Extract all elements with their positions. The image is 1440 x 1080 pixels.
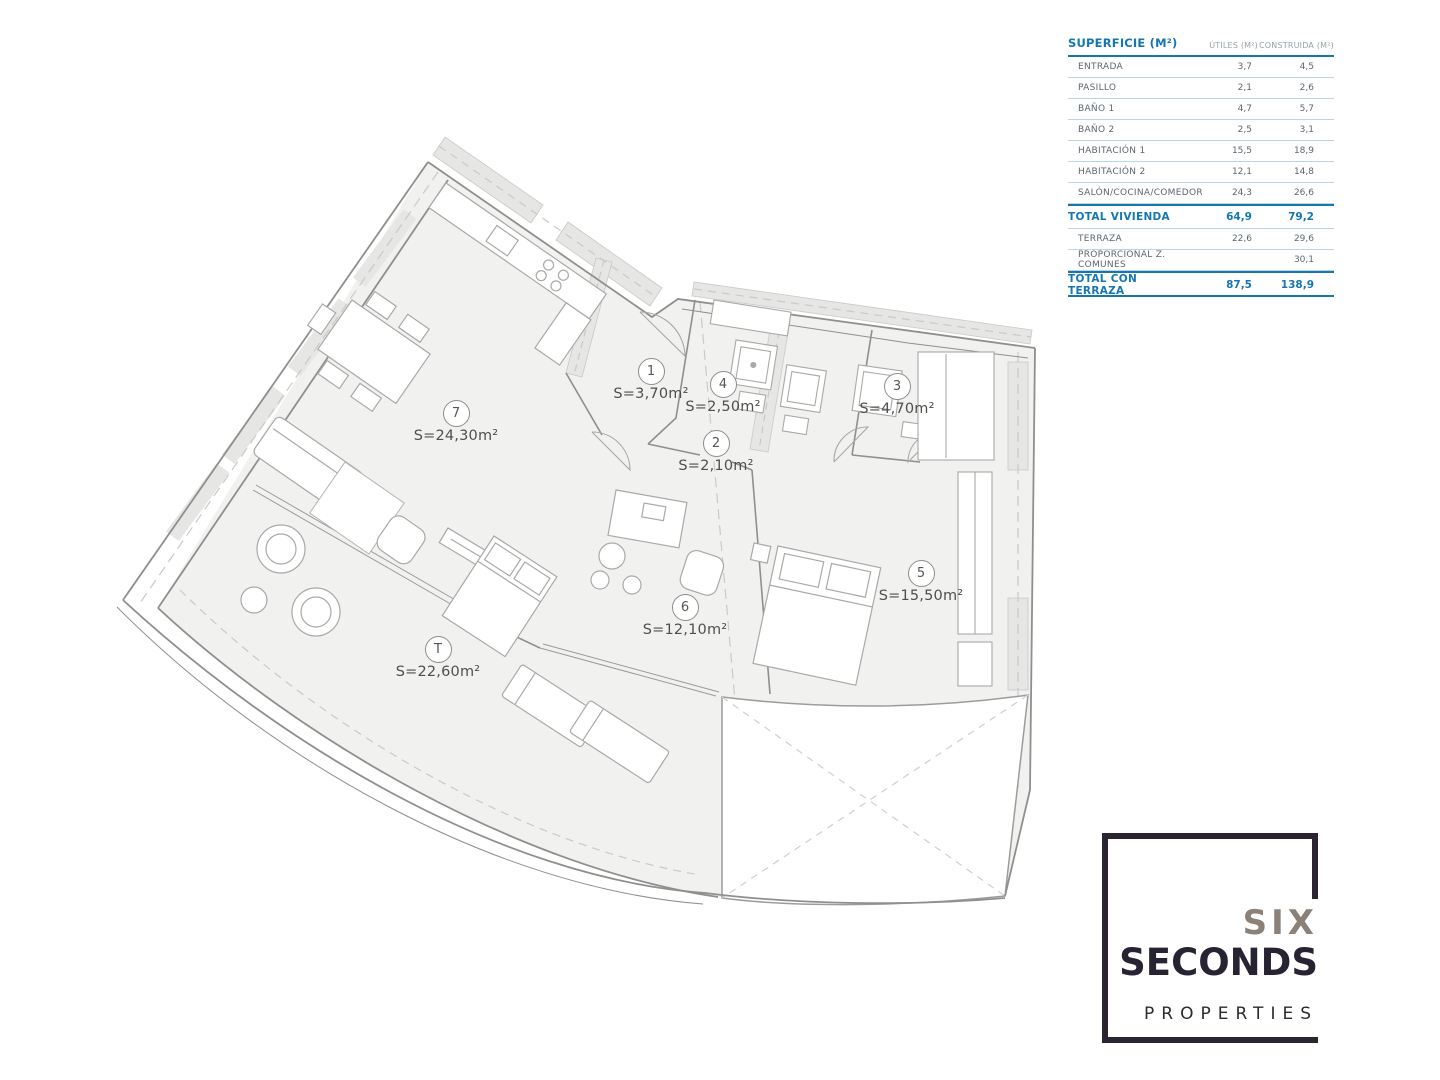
table-header: SUPERFICIE (M²) ÚTILES (M²) CONSTRUIDA (… <box>1068 36 1334 57</box>
logo-frame-right-segment <box>1312 833 1318 899</box>
room-label-salon: 7 S=24,30m² <box>401 400 511 444</box>
table-row-total-vivienda: TOTAL VIVIENDA 64,9 79,2 <box>1068 204 1334 229</box>
table-row: BAÑO 1 4,7 5,7 <box>1068 99 1334 120</box>
room-number: T <box>425 636 452 663</box>
row-construida: 14,8 <box>1258 167 1334 177</box>
row-construida: 29,6 <box>1258 234 1334 244</box>
row-label: PASILLO <box>1068 83 1196 93</box>
column-header-utiles: ÚTILES (M²) <box>1196 41 1258 50</box>
room-number: 3 <box>884 373 911 400</box>
room-label-bano2: 4 S=2,50m² <box>668 371 778 415</box>
room-area: S=22,60m² <box>396 664 481 680</box>
table-row: BAÑO 2 2,5 3,1 <box>1068 120 1334 141</box>
row-construida: 30,1 <box>1258 255 1334 265</box>
row-utiles: 12,1 <box>1196 167 1258 177</box>
row-utiles: 15,5 <box>1196 146 1258 156</box>
row-label: HABITACIÓN 1 <box>1068 146 1196 156</box>
table-row: HABITACIÓN 2 12,1 14,8 <box>1068 162 1334 183</box>
row-label: TERRAZA <box>1068 234 1196 244</box>
row-construida: 2,6 <box>1258 83 1334 93</box>
table-row: HABITACIÓN 1 15,5 18,9 <box>1068 141 1334 162</box>
logo-word-seconds: SECONDS <box>1119 944 1318 981</box>
room-area: S=2,50m² <box>685 399 760 415</box>
room-label-habitacion1: 5 S=15,50m² <box>866 560 976 604</box>
room-label-terraza: T S=22,60m² <box>383 636 493 680</box>
room-area: S=24,30m² <box>414 428 499 444</box>
row-utiles: 64,9 <box>1196 211 1258 223</box>
room-number: 2 <box>703 430 730 457</box>
room-number: 4 <box>710 371 737 398</box>
logo-word-properties: PROPERTIES <box>1144 1006 1318 1023</box>
row-construida: 3,1 <box>1258 125 1334 135</box>
table-title: SUPERFICIE (M²) <box>1068 36 1196 50</box>
row-utiles: 2,5 <box>1196 125 1258 135</box>
row-utiles: 4,7 <box>1196 104 1258 114</box>
row-utiles: 3,7 <box>1196 62 1258 72</box>
row-construida: 18,9 <box>1258 146 1334 156</box>
row-label: TOTAL VIVIENDA <box>1068 211 1196 223</box>
row-utiles: 87,5 <box>1196 279 1258 291</box>
surface-table: SUPERFICIE (M²) ÚTILES (M²) CONSTRUIDA (… <box>1068 36 1334 297</box>
page: 7 S=24,30m² 1 S=3,70m² 4 S=2,50m² 3 S=4,… <box>0 0 1440 1080</box>
row-construida: 138,9 <box>1258 279 1334 291</box>
row-construida: 4,5 <box>1258 62 1334 72</box>
row-utiles: 24,3 <box>1196 188 1258 198</box>
room-area: S=15,50m² <box>879 588 964 604</box>
room-number: 1 <box>638 358 665 385</box>
room-area: S=4,70m² <box>859 401 934 417</box>
row-label: ENTRADA <box>1068 62 1196 72</box>
row-label: HABITACIÓN 2 <box>1068 167 1196 177</box>
row-label: BAÑO 1 <box>1068 104 1196 114</box>
row-construida: 26,6 <box>1258 188 1334 198</box>
column-header-construida: CONSTRUIDA (M²) <box>1258 41 1334 50</box>
room-area: S=2,10m² <box>678 458 753 474</box>
table-row-total-terraza: TOTAL CON TERRAZA 87,5 138,9 <box>1068 271 1334 297</box>
logo-word-six: SIX <box>1243 906 1318 940</box>
row-label: BAÑO 2 <box>1068 125 1196 135</box>
row-utiles: 22,6 <box>1196 234 1258 244</box>
room-label-habitacion2: 6 S=12,10m² <box>630 594 740 638</box>
table-row: TERRAZA 22,6 29,6 <box>1068 229 1334 250</box>
room-label-bano1: 3 S=4,70m² <box>842 373 952 417</box>
row-utiles: 2,1 <box>1196 83 1258 93</box>
room-area: S=12,10m² <box>643 622 728 638</box>
table-row: PASILLO 2,1 2,6 <box>1068 78 1334 99</box>
row-label: TOTAL CON TERRAZA <box>1068 273 1196 297</box>
row-label: SALÓN/COCINA/COMEDOR <box>1068 188 1196 198</box>
table-row: PROPORCIONAL Z. COMUNES 30,1 <box>1068 250 1334 271</box>
room-number: 6 <box>672 594 699 621</box>
table-row: ENTRADA 3,7 4,5 <box>1068 57 1334 78</box>
row-label: PROPORCIONAL Z. COMUNES <box>1068 250 1196 270</box>
row-construida: 79,2 <box>1258 211 1334 223</box>
row-construida: 5,7 <box>1258 104 1334 114</box>
table-row: SALÓN/COCINA/COMEDOR 24,3 26,6 <box>1068 183 1334 204</box>
room-number: 7 <box>443 400 470 427</box>
void-area-crossed <box>722 695 1028 905</box>
room-number: 5 <box>908 560 935 587</box>
room-label-pasillo: 2 S=2,10m² <box>661 430 771 474</box>
